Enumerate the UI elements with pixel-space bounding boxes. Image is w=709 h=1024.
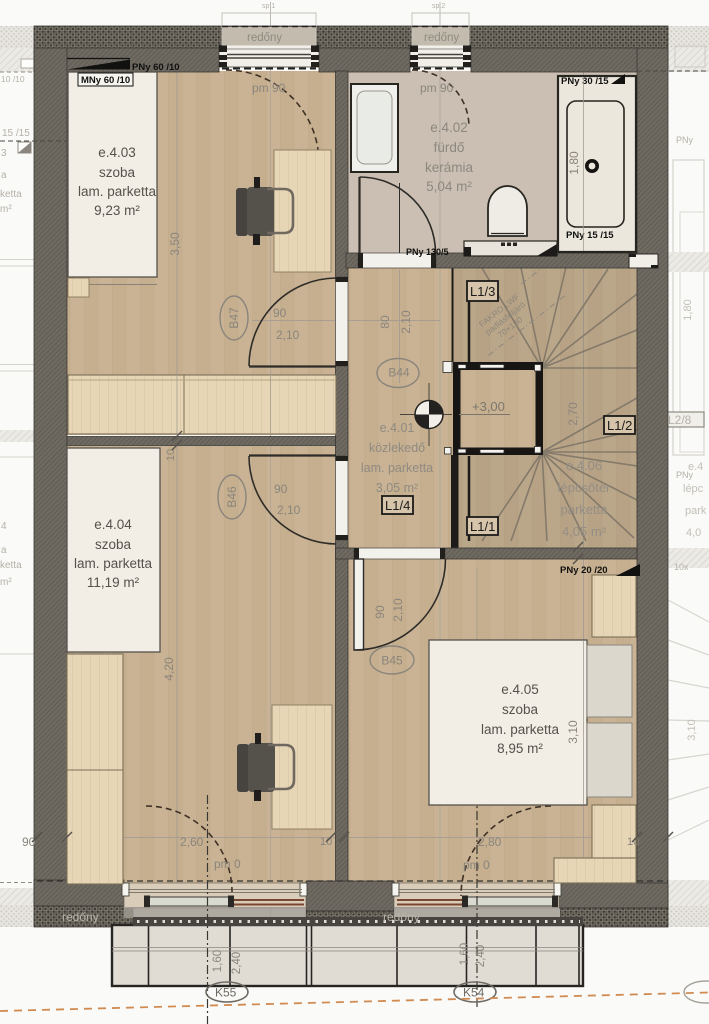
- svg-text:redőny: redőny: [424, 32, 459, 44]
- svg-text:15 /15: 15 /15: [2, 128, 30, 139]
- svg-text:4,05 m²: 4,05 m²: [562, 524, 607, 539]
- svg-text:lépcsőtér: lépcsőtér: [558, 480, 611, 495]
- svg-text:B44: B44: [388, 366, 410, 380]
- svg-text:lam. parketta: lam. parketta: [78, 184, 157, 199]
- svg-text:1,60: 1,60: [459, 943, 471, 965]
- svg-text:m²: m²: [0, 204, 12, 215]
- svg-text:K54: K54: [463, 986, 485, 1000]
- svg-text:a: a: [1, 170, 7, 181]
- svg-text:90: 90: [22, 835, 36, 849]
- svg-text:4,0: 4,0: [686, 527, 701, 539]
- svg-text:parketta: parketta: [561, 502, 609, 517]
- svg-text:redőny: redőny: [247, 32, 282, 44]
- svg-text:3,05 m²: 3,05 m²: [376, 481, 418, 495]
- svg-text:e.4.01: e.4.01: [380, 421, 415, 435]
- svg-text:L1/3: L1/3: [470, 284, 495, 299]
- svg-text:+3,00: +3,00: [472, 399, 505, 414]
- svg-text:2,10: 2,10: [391, 598, 405, 622]
- svg-text:2,40: 2,40: [231, 952, 243, 974]
- svg-text:B45: B45: [381, 654, 403, 668]
- svg-text:e.4.04: e.4.04: [94, 517, 132, 532]
- svg-text:4,20: 4,20: [162, 657, 176, 681]
- svg-text:fürdő: fürdő: [434, 140, 465, 155]
- svg-text:L2/8: L2/8: [668, 413, 692, 427]
- svg-text:kerámia: kerámia: [425, 160, 474, 175]
- svg-text:3,10: 3,10: [686, 719, 698, 740]
- svg-text:90: 90: [274, 482, 288, 496]
- svg-text:10: 10: [165, 449, 177, 461]
- svg-text:PNy 130/5: PNy 130/5: [406, 247, 449, 257]
- svg-text:3,50: 3,50: [168, 232, 182, 256]
- svg-text:B46: B46: [225, 486, 239, 508]
- svg-text:L1/2: L1/2: [607, 418, 632, 433]
- svg-text:5,04 m²: 5,04 m²: [426, 179, 472, 194]
- svg-text:e.4.03: e.4.03: [98, 145, 136, 160]
- svg-text:10 /10: 10 /10: [1, 74, 25, 84]
- svg-text:3: 3: [1, 148, 7, 159]
- svg-text:2,80: 2,80: [478, 835, 502, 849]
- svg-text:redőny: redőny: [383, 910, 420, 924]
- svg-text:1,80: 1,80: [682, 299, 694, 320]
- svg-text:B47: B47: [227, 307, 241, 329]
- svg-text:redőny: redőny: [62, 910, 99, 924]
- svg-text:lam. parketta: lam. parketta: [361, 461, 433, 475]
- svg-text:PNy 20 /20: PNy 20 /20: [560, 565, 608, 576]
- svg-text:9,23 m²: 9,23 m²: [94, 203, 140, 218]
- svg-text:pm 0: pm 0: [214, 857, 241, 871]
- svg-text:MNy 60 /10: MNy 60 /10: [81, 75, 130, 86]
- svg-text:a: a: [1, 545, 7, 556]
- svg-text:lam. parketta: lam. parketta: [481, 722, 560, 737]
- svg-text:szoba: szoba: [95, 537, 132, 552]
- svg-text:K55: K55: [215, 986, 237, 1000]
- svg-text:2,10: 2,10: [399, 310, 413, 334]
- svg-text:ketta: ketta: [0, 189, 22, 200]
- svg-text:L1/4: L1/4: [385, 498, 410, 513]
- svg-text:m²: m²: [0, 577, 12, 588]
- svg-text:2,60: 2,60: [180, 835, 204, 849]
- svg-text:ketta: ketta: [0, 560, 22, 571]
- svg-text:2,10: 2,10: [277, 503, 301, 517]
- svg-text:e.4.05: e.4.05: [501, 682, 539, 697]
- svg-text:pm 90: pm 90: [420, 81, 454, 95]
- svg-text:lépc: lépc: [683, 483, 704, 495]
- svg-text:1,60: 1,60: [212, 950, 224, 972]
- svg-text:e.4: e.4: [688, 461, 703, 473]
- svg-text:90: 90: [273, 306, 287, 320]
- svg-text:11,19 m²: 11,19 m²: [87, 575, 140, 590]
- svg-text:sp.1: sp.1: [262, 3, 275, 10]
- svg-text:1,80: 1,80: [567, 151, 581, 175]
- svg-text:pm 90: pm 90: [252, 81, 286, 95]
- svg-text:park: park: [685, 505, 707, 517]
- svg-text:10: 10: [627, 836, 639, 848]
- svg-text:3,10: 3,10: [566, 720, 580, 744]
- svg-text:2,40: 2,40: [475, 945, 487, 967]
- svg-text:PNy 30 /15: PNy 30 /15: [561, 76, 609, 87]
- svg-text:90: 90: [373, 605, 387, 619]
- svg-text:e.4.06: e.4.06: [566, 458, 602, 473]
- svg-text:pm 0: pm 0: [463, 858, 490, 872]
- svg-text:2,70: 2,70: [566, 402, 580, 426]
- svg-text:4: 4: [1, 521, 7, 532]
- svg-text:2,10: 2,10: [276, 328, 300, 342]
- svg-text:80: 80: [378, 315, 392, 329]
- svg-text:sp.2: sp.2: [432, 3, 445, 10]
- svg-text:szoba: szoba: [99, 165, 136, 180]
- svg-text:PNy: PNy: [676, 135, 694, 145]
- svg-text:lam. parketta: lam. parketta: [74, 556, 153, 571]
- svg-text:e.4.02: e.4.02: [430, 120, 468, 135]
- svg-text:közlekedő: közlekedő: [369, 441, 425, 455]
- svg-text:PNy 60 /10: PNy 60 /10: [132, 62, 180, 73]
- svg-text:8,95 m²: 8,95 m²: [497, 741, 543, 756]
- svg-text:10x: 10x: [674, 562, 689, 572]
- svg-text:PNy 15 /15: PNy 15 /15: [566, 230, 614, 241]
- svg-text:L1/1: L1/1: [470, 519, 495, 534]
- svg-text:szoba: szoba: [502, 702, 539, 717]
